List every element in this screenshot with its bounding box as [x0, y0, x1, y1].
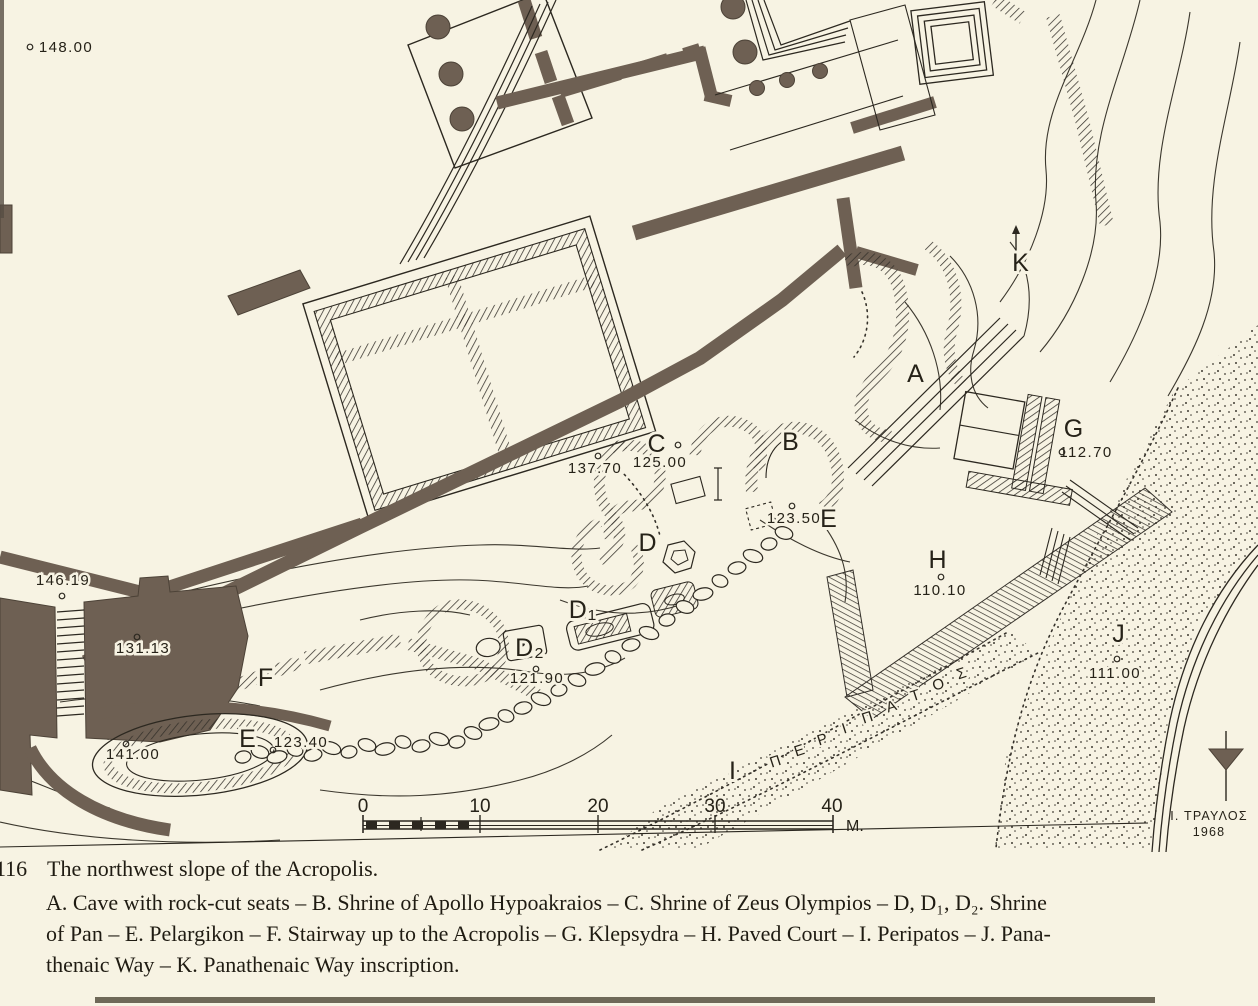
map-label-J: J: [1112, 620, 1126, 648]
elevation-131.13: 131.13: [116, 640, 170, 657]
map-label-E-lower: E: [239, 725, 257, 753]
boulder-stone: [621, 637, 641, 652]
elevation-123.50: 123.50: [767, 510, 821, 527]
boulder-stone: [357, 737, 378, 754]
map-label-H: H: [928, 546, 947, 574]
north-arrow: [1209, 731, 1243, 801]
map-label-F: F: [258, 664, 274, 692]
elevation-148.00: 148.00: [39, 39, 93, 56]
credit-year: 1968: [1193, 825, 1226, 839]
boulder-stone: [760, 536, 778, 551]
scale-tick-label: 20: [587, 796, 608, 817]
map-label-G: G: [1064, 415, 1084, 443]
scanned-book-page: Ι. ΤΡΑΥΛΟΣ 1968 ABCDD₁D₂EEFGHΙJK148.0014…: [0, 0, 1258, 1006]
panathenaic-inscription-arrow: [1012, 225, 1020, 252]
scale-tick-label: 30: [704, 796, 725, 817]
elevation-110.10: 110.10: [913, 582, 966, 599]
boulder-stone: [711, 573, 730, 589]
elevation-146.19: 146.19: [36, 572, 90, 589]
map-label-D2: D₂: [515, 634, 545, 662]
scale-tick-label: 10: [469, 796, 490, 817]
scan-edge-smudge-bottom: [95, 997, 1155, 1003]
elevation-marker: [59, 593, 65, 599]
elevation-marker: [27, 44, 33, 50]
hatched-walls-northeast: [928, 0, 1107, 384]
figure-legend-line-3: thenaic Way – K. Panathenaic Way inscrip…: [46, 949, 1258, 980]
elevation-123.40: 123.40: [274, 734, 328, 751]
boulder-stone: [374, 741, 396, 757]
boulder-stone: [727, 560, 747, 575]
boulder-stone: [584, 661, 606, 677]
map-label-D: D: [638, 529, 657, 557]
scale-unit-label: M.: [846, 818, 864, 835]
map-label-A: A: [907, 360, 925, 388]
boulder-stone: [394, 734, 413, 750]
stoa-step-lines: [746, 0, 935, 130]
scan-edge-smudge-left: [0, 0, 4, 218]
boulder-stone: [497, 708, 516, 724]
elevation-121.90: 121.90: [510, 670, 564, 687]
boulder-stone: [513, 700, 533, 715]
map-label-E-upper: E: [820, 505, 838, 533]
figure-caption: 116 The northwest slope of the Acropolis…: [0, 856, 1258, 980]
boulder-stone: [448, 734, 466, 749]
map-label-D1: D₁: [569, 596, 598, 624]
boulder-stone: [742, 547, 765, 565]
elevation-141.00: 141.00: [106, 746, 160, 763]
map-label-B: B: [782, 428, 800, 456]
elevation-112.70: 112.70: [1059, 444, 1112, 461]
credit-name: Ι. ΤΡΑΥΛΟΣ: [1170, 809, 1248, 823]
boulder-stone: [428, 730, 451, 748]
elevation-marker: [595, 453, 601, 459]
figure-legend-line-1: A. Cave with rock-cut seats – B. Shrine …: [46, 887, 1258, 918]
boulder-stone: [638, 624, 661, 642]
figure-legend-line-2: of Pan – E. Pelargikon – F. Stairway up …: [46, 918, 1258, 949]
elevation-111.00: 111.00: [1089, 665, 1141, 682]
elevation-125.00: 125.00: [633, 454, 687, 471]
scale-tick-label: 40: [821, 796, 842, 817]
elevation-marker: [789, 503, 795, 509]
boulder-stone: [478, 716, 500, 732]
boulder-stone: [411, 738, 431, 753]
map-label-I: Ι: [729, 757, 737, 785]
boulder-stone: [340, 744, 358, 759]
elevation-137.70: 137.70: [568, 460, 622, 477]
ramp-lines: [848, 318, 1024, 486]
map-label-K: K: [1012, 249, 1030, 277]
elevation-marker: [675, 442, 681, 448]
elevation-marker: [938, 574, 944, 580]
figure-number: 116: [0, 856, 47, 882]
acropolis-nw-slope-plan: Ι. ΤΡΑΥΛΟΣ 1968 ABCDD₁D₂EEFGHΙJK148.0014…: [0, 0, 1258, 852]
scale-tick-label: 0: [358, 796, 369, 817]
boulder-stone: [604, 649, 623, 665]
figure-title: The northwest slope of the Acropolis.: [47, 856, 378, 882]
fortification-wall-diagonal: [0, 205, 842, 662]
